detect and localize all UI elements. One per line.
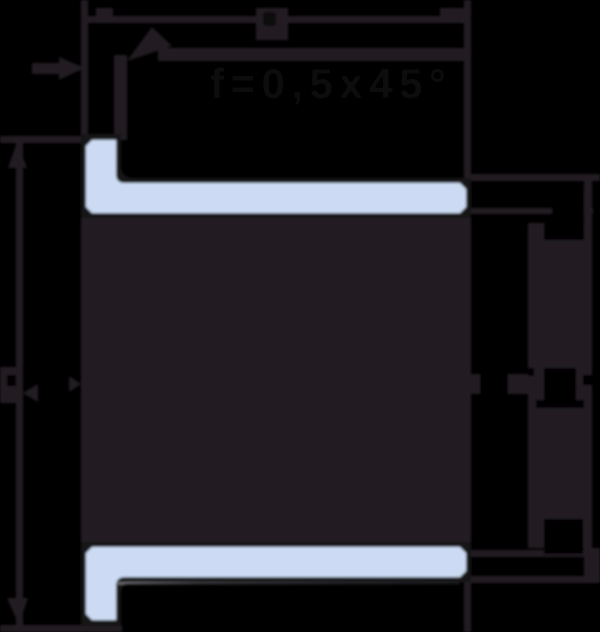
svg-text:f=0,5x45°: f=0,5x45°: [210, 60, 452, 107]
